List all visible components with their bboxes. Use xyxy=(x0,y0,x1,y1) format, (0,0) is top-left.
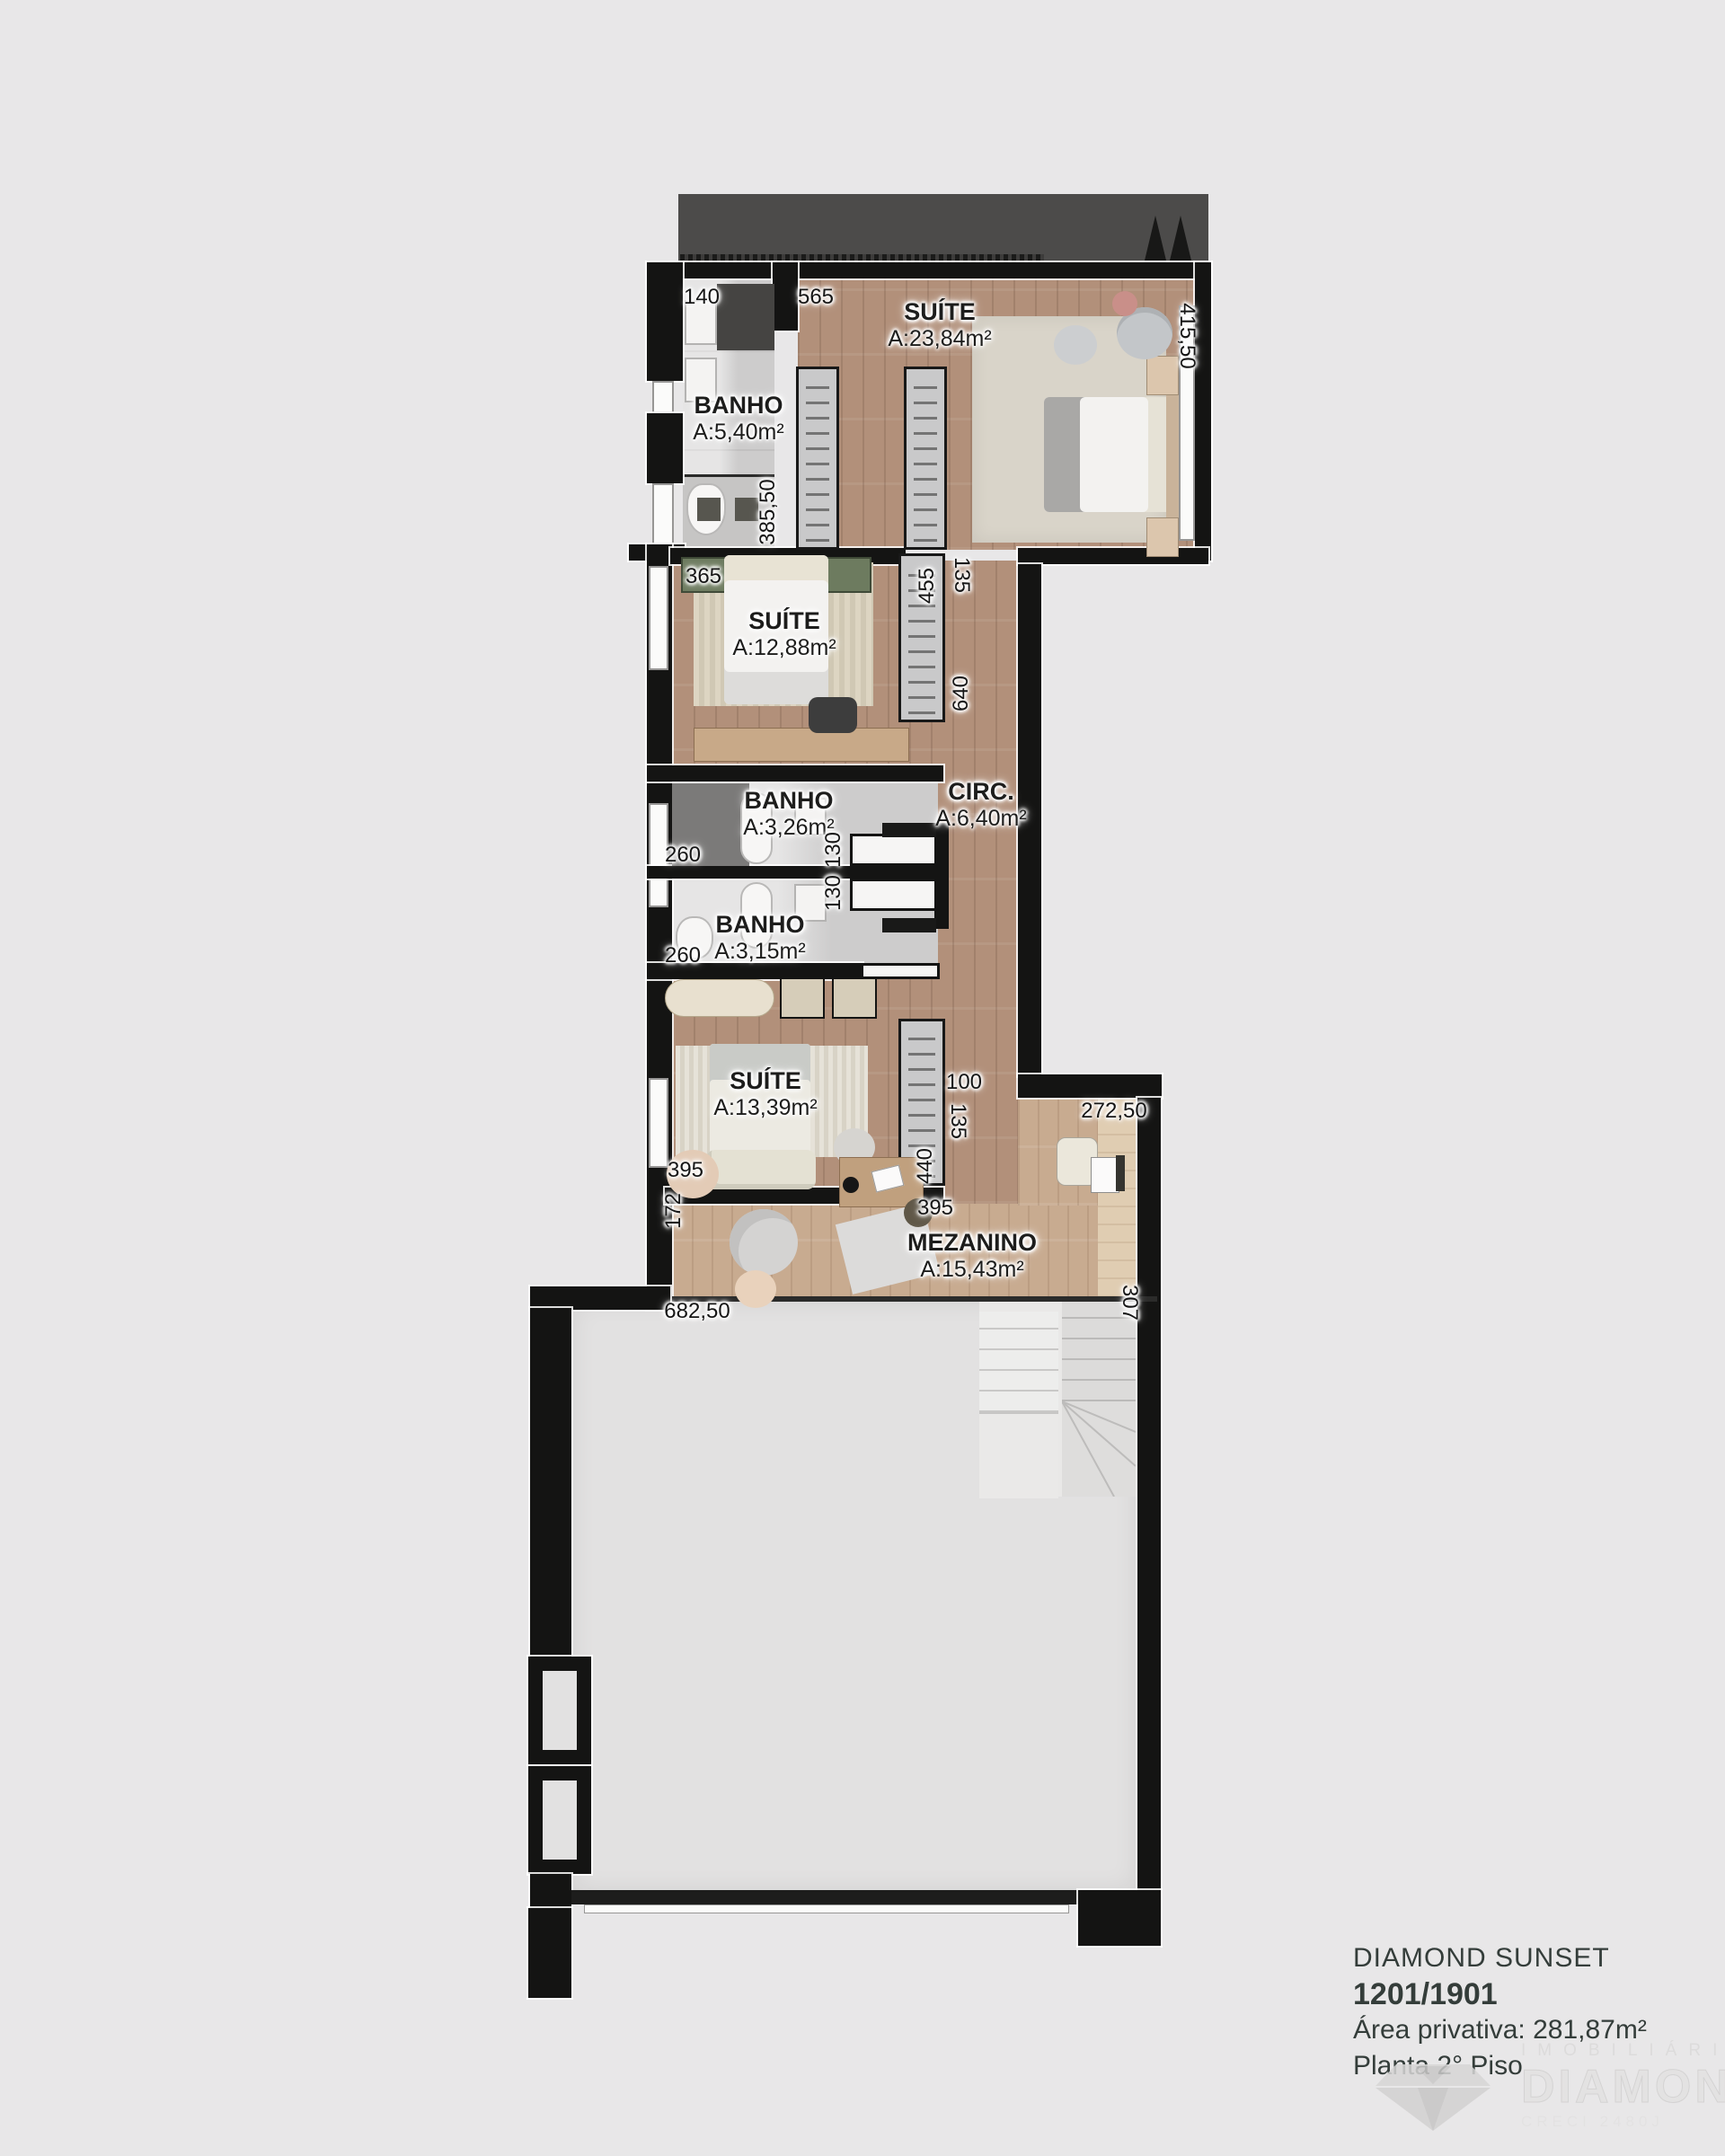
console-table-2 xyxy=(882,918,936,932)
window-left-upper-2 xyxy=(652,483,674,544)
watermark-diamond: DIAMOND xyxy=(1521,2061,1706,2113)
room-area: A:6,40m² xyxy=(935,805,1026,832)
room-area: A:5,40m² xyxy=(693,419,783,446)
stool-2 xyxy=(832,977,877,1019)
dim-395-a: 395 xyxy=(668,1158,703,1183)
wall-top xyxy=(670,262,1211,278)
dim-135-a: 135 xyxy=(949,557,974,593)
diamond-logo-icon xyxy=(1375,2063,1491,2133)
shower-drain-1 xyxy=(697,498,721,521)
dim-140: 140 xyxy=(684,285,720,310)
dim-455: 455 xyxy=(915,568,940,604)
room-name: SUÍTE xyxy=(748,607,820,634)
dim-260-a: 260 xyxy=(665,843,701,868)
dim-135-b: 135 xyxy=(945,1103,970,1139)
dim-415-50: 415,50 xyxy=(1174,303,1199,368)
room-label-suite-2: SUÍTE A:12,88m² xyxy=(732,607,836,661)
bed-cushions-suite-3 xyxy=(706,1150,816,1189)
desk-chair-suite-2 xyxy=(809,697,857,733)
wall-above-banho-2 xyxy=(647,765,943,782)
wall-mezzanine-jog xyxy=(1018,1074,1162,1098)
nightstand-2 xyxy=(1146,517,1179,557)
floor-plan-canvas: SUÍTE A:23,84m² BANHO A:5,40m² SUÍTE A:1… xyxy=(0,0,1725,2156)
room-label-banho-3: BANHO A:3,15m² xyxy=(714,911,805,965)
dim-385-50: 385,50 xyxy=(756,479,781,544)
pillar-box-1 xyxy=(528,1657,591,1764)
dim-440: 440 xyxy=(913,1148,938,1184)
pocket-frame xyxy=(934,823,949,929)
pergola-m-icon xyxy=(1143,214,1199,261)
room-name: BANHO xyxy=(745,787,834,814)
vanity-counter-dark xyxy=(717,284,774,350)
decor-bowl xyxy=(843,1177,859,1193)
room-label-suite-master: SUÍTE A:23,84m² xyxy=(888,298,991,352)
window-left-upper xyxy=(652,381,674,413)
room-label-banho-master: BANHO A:5,40m² xyxy=(693,392,783,446)
room-area: A:15,43m² xyxy=(907,1256,1037,1283)
stairs-upper-flight xyxy=(979,1312,1058,1412)
room-area: A:23,84m² xyxy=(888,325,991,352)
wall-left-upper-b xyxy=(647,413,683,483)
ottoman xyxy=(1054,325,1097,365)
door-niche-banho-2 xyxy=(850,834,938,866)
desk-suite-2 xyxy=(694,728,909,762)
watermark: IMOBILIÁRIA DIAMOND CRECI 2480J xyxy=(1521,2041,1706,2131)
terrace-hatch-strip xyxy=(680,254,1044,262)
pillar-box-2 xyxy=(528,1766,591,1874)
side-table-mezzanine xyxy=(735,1270,776,1308)
room-name: CIRC. xyxy=(948,778,1014,805)
headboard-suite-master xyxy=(1166,386,1179,521)
dim-272-50: 272,50 xyxy=(1081,1099,1146,1124)
green-nightstand-2 xyxy=(827,557,871,593)
dim-100: 100 xyxy=(946,1070,982,1095)
side-table-round xyxy=(1112,291,1137,316)
desk-phone xyxy=(1116,1155,1125,1191)
window-suite-3 xyxy=(649,1078,668,1168)
room-name: MEZANINO xyxy=(907,1229,1037,1256)
dim-130-a: 130 xyxy=(821,832,846,868)
bed-suite-master xyxy=(1044,397,1179,512)
room-label-mezanino: MEZANINO A:15,43m² xyxy=(907,1229,1037,1283)
wall-lower-left-stub xyxy=(530,1874,571,1910)
desk-wood-strip xyxy=(1098,1100,1137,1297)
dim-565: 565 xyxy=(798,285,834,310)
unit-number: 1201/1901 xyxy=(1353,1976,1647,2012)
lounge-chair xyxy=(730,1209,798,1276)
room-area: A:3,15m² xyxy=(714,938,805,965)
dim-307: 307 xyxy=(1117,1285,1142,1321)
room-name: SUÍTE xyxy=(730,1067,801,1094)
wall-upper-block-bottom-right xyxy=(1018,548,1208,564)
room-name: BANHO xyxy=(716,911,805,938)
room-area: A:13,39m² xyxy=(713,1094,817,1121)
stool-1 xyxy=(780,977,825,1019)
wall-lower-step xyxy=(530,1286,670,1310)
wardrobe-suite-master-left xyxy=(796,367,839,550)
glass-railing-bottom xyxy=(584,1904,1069,1913)
dim-365: 365 xyxy=(686,564,721,589)
wall-right-outer xyxy=(1137,1098,1161,1908)
wall-lower-left xyxy=(530,1308,571,1657)
room-label-suite-3: SUÍTE A:13,39m² xyxy=(713,1067,817,1121)
watermark-creci: CRECI 2480J xyxy=(1521,2113,1706,2131)
wall-bottom-right-block xyxy=(1078,1890,1161,1946)
room-area: A:12,88m² xyxy=(732,634,836,661)
room-name: BANHO xyxy=(694,392,783,419)
dim-395-b: 395 xyxy=(917,1196,953,1221)
window-suite-2 xyxy=(649,566,668,670)
stairs-winder-treads xyxy=(1062,1401,1136,1497)
console-table-1 xyxy=(882,823,936,837)
dim-682-50: 682,50 xyxy=(664,1299,730,1324)
room-name: SUÍTE xyxy=(904,298,976,325)
door-niche-banho-3 xyxy=(850,879,938,911)
dim-640: 640 xyxy=(949,676,974,711)
stairs-landing xyxy=(979,1412,1058,1498)
wall-between-banhos xyxy=(647,866,943,879)
dim-260-b: 260 xyxy=(665,943,701,968)
dim-172: 172 xyxy=(661,1193,686,1229)
room-label-circ: CIRC. A:6,40m² xyxy=(935,778,1026,832)
project-name: DIAMOND SUNSET xyxy=(1353,1940,1647,1976)
watermark-imobiliaria: IMOBILIÁRIA xyxy=(1521,2041,1706,2061)
dim-130-b: 130 xyxy=(821,875,846,911)
wall-pier-banho-closet xyxy=(773,262,798,331)
wall-bottom-left-block xyxy=(528,1908,571,1998)
wall-bottom xyxy=(571,1890,1080,1904)
wardrobe-suite-master-right xyxy=(904,367,947,550)
bench-suite-3 xyxy=(665,979,774,1017)
stairs xyxy=(979,1301,1136,1497)
wall-left-upper-a xyxy=(647,262,683,381)
